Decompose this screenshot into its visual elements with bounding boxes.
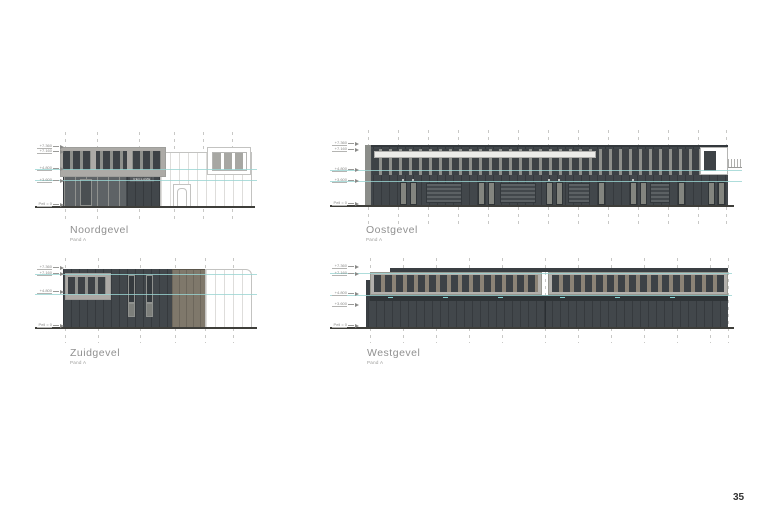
level-marker-icon <box>60 203 66 207</box>
fascia-label <box>443 297 448 298</box>
elevation-title-westgevel: Westgevel <box>367 347 420 359</box>
upper-window-strip <box>68 277 106 294</box>
door <box>630 182 637 205</box>
level-marker: +4.800 <box>37 166 66 171</box>
louvre-panel <box>500 183 536 203</box>
level-marker-icon <box>355 265 361 269</box>
level-marker-icon <box>60 290 66 294</box>
level-marker-icon <box>355 292 361 296</box>
corner-pier <box>365 145 371 205</box>
tan-wall <box>172 269 205 327</box>
level-marker: +3.600 <box>37 178 66 183</box>
window-strip <box>128 275 135 303</box>
louvre-panel <box>426 183 462 203</box>
roof-box-window <box>704 151 716 171</box>
level-marker-icon <box>355 303 361 307</box>
door-lamp <box>548 179 550 181</box>
level-marker: +7.160 <box>37 271 66 276</box>
door <box>678 182 685 205</box>
fascia-label <box>560 297 565 298</box>
elevation-subtitle-westgevel: Pand A <box>367 360 383 365</box>
canopy-strip <box>374 151 596 158</box>
elevation-subtitle-noordgevel: Pand A <box>70 237 86 242</box>
level-line <box>330 181 742 182</box>
level-line <box>35 169 257 170</box>
door-lamp <box>558 179 560 181</box>
facade-cladding <box>368 301 728 327</box>
fascia-label <box>388 297 393 298</box>
elevation-subtitle-oostgevel: Pand A <box>366 237 382 242</box>
level-line <box>35 274 257 275</box>
door-lamp <box>412 179 414 181</box>
level-marker-icon <box>60 179 66 183</box>
upper-window-strip <box>63 151 161 170</box>
level-line <box>330 295 732 296</box>
louvre-panel <box>650 183 670 203</box>
window-band-strip <box>552 275 724 292</box>
level-marker-icon <box>60 150 66 154</box>
level-marker: +7.160 <box>332 147 361 152</box>
facade-sign: RECLAME <box>130 177 154 182</box>
level-marker-icon <box>60 145 66 149</box>
fascia-label <box>615 297 620 298</box>
level-marker: +4.800 <box>332 291 361 296</box>
elevation-title-noordgevel: Noordgevel <box>70 224 129 236</box>
level-line <box>35 294 257 295</box>
level-marker: +3.600 <box>332 302 361 307</box>
level-marker: +7.160 <box>332 271 361 276</box>
ground-line <box>330 327 734 329</box>
level-marker-icon <box>60 167 66 171</box>
page-number: 35 <box>733 492 744 503</box>
door <box>410 182 417 205</box>
door <box>488 182 495 205</box>
level-marker-icon <box>355 148 361 152</box>
level-marker-icon <box>60 272 66 276</box>
fascia-label <box>498 297 503 298</box>
level-marker-icon <box>355 179 361 183</box>
door <box>718 182 725 205</box>
level-marker-icon <box>60 324 66 328</box>
elevation-oostgevel: +7.360 +7.160 +4.800 +3.600 Peil = 0 <box>330 128 775 228</box>
level-marker: +4.800 <box>332 167 361 172</box>
louvre-panel <box>568 183 590 203</box>
window-strip-lower <box>128 303 135 317</box>
outline-door <box>177 188 187 208</box>
elevation-zuidgevel: +7.360 +7.160 +4.800 Peil = 0 <box>35 258 270 358</box>
level-marker: Peil = 0 <box>332 323 361 328</box>
elevation-subtitle-zuidgevel: Pand A <box>70 360 86 365</box>
level-marker: Peil = 0 <box>37 323 66 328</box>
door <box>640 182 647 205</box>
outline-building <box>205 269 252 329</box>
level-marker: Peil = 0 <box>37 202 66 207</box>
drawing-sheet: RECLAME +7.360 +7.160 +4.800 +3.600 Peil… <box>0 0 780 520</box>
door <box>708 182 715 205</box>
window-pier <box>91 151 96 170</box>
elevation-title-zuidgevel: Zuidgevel <box>70 347 120 359</box>
level-marker-icon <box>60 266 66 270</box>
level-marker-icon <box>355 202 361 206</box>
level-marker: +7.360 <box>332 264 361 269</box>
level-line <box>330 170 742 171</box>
grid-line <box>728 258 729 343</box>
elevation-title-oostgevel: Oostgevel <box>366 224 418 236</box>
door <box>400 182 407 205</box>
elevation-westgevel: +7.360 +7.160 +4.800 +3.600 Peil = 0 <box>330 258 775 358</box>
door <box>556 182 563 205</box>
window-strip-lower <box>146 303 153 317</box>
door <box>546 182 553 205</box>
level-marker: +4.800 <box>37 289 66 294</box>
level-marker: Peil = 0 <box>332 201 361 206</box>
level-marker-icon <box>355 168 361 172</box>
ground-line <box>35 327 257 329</box>
level-line <box>330 273 732 274</box>
ground-line <box>330 205 734 207</box>
level-marker-icon <box>355 324 361 328</box>
door <box>478 182 485 205</box>
level-marker: +7.160 <box>37 149 66 154</box>
window-band-strip <box>374 275 538 292</box>
window-pier <box>127 151 132 170</box>
door <box>598 182 605 205</box>
entrance-door <box>80 179 92 206</box>
door-lamp <box>632 179 634 181</box>
ground-line <box>35 206 255 208</box>
balcony-railing <box>728 159 742 168</box>
level-marker-icon <box>355 142 361 146</box>
door-lamp <box>402 179 404 181</box>
window-strip <box>146 275 153 303</box>
facade-joint <box>545 301 546 327</box>
level-marker: +3.600 <box>332 178 361 183</box>
fascia-label <box>670 297 675 298</box>
elevation-noordgevel: RECLAME +7.360 +7.160 +4.800 +3.600 Peil… <box>35 128 270 228</box>
level-marker-icon <box>355 272 361 276</box>
